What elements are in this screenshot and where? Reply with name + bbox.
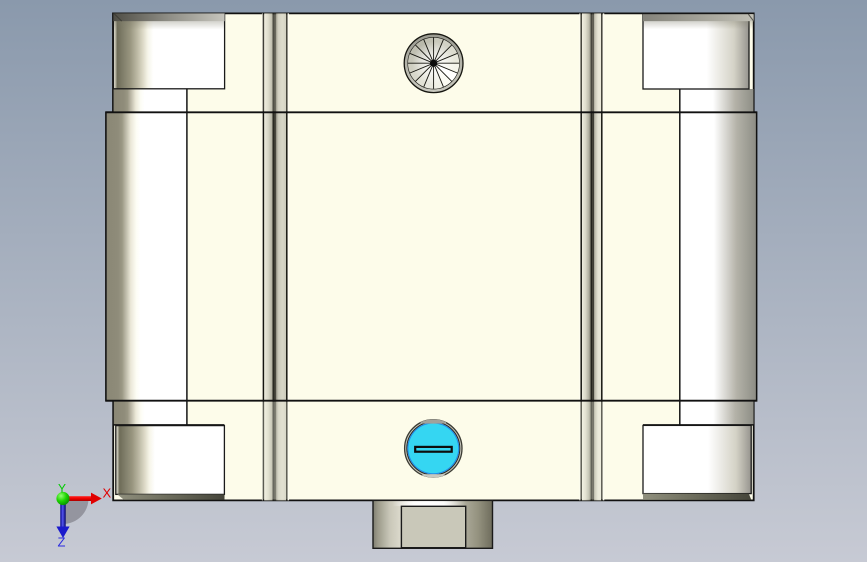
svg-text:Y: Y xyxy=(58,482,66,496)
svg-text:Z: Z xyxy=(58,535,66,550)
svg-text:X: X xyxy=(103,486,112,501)
